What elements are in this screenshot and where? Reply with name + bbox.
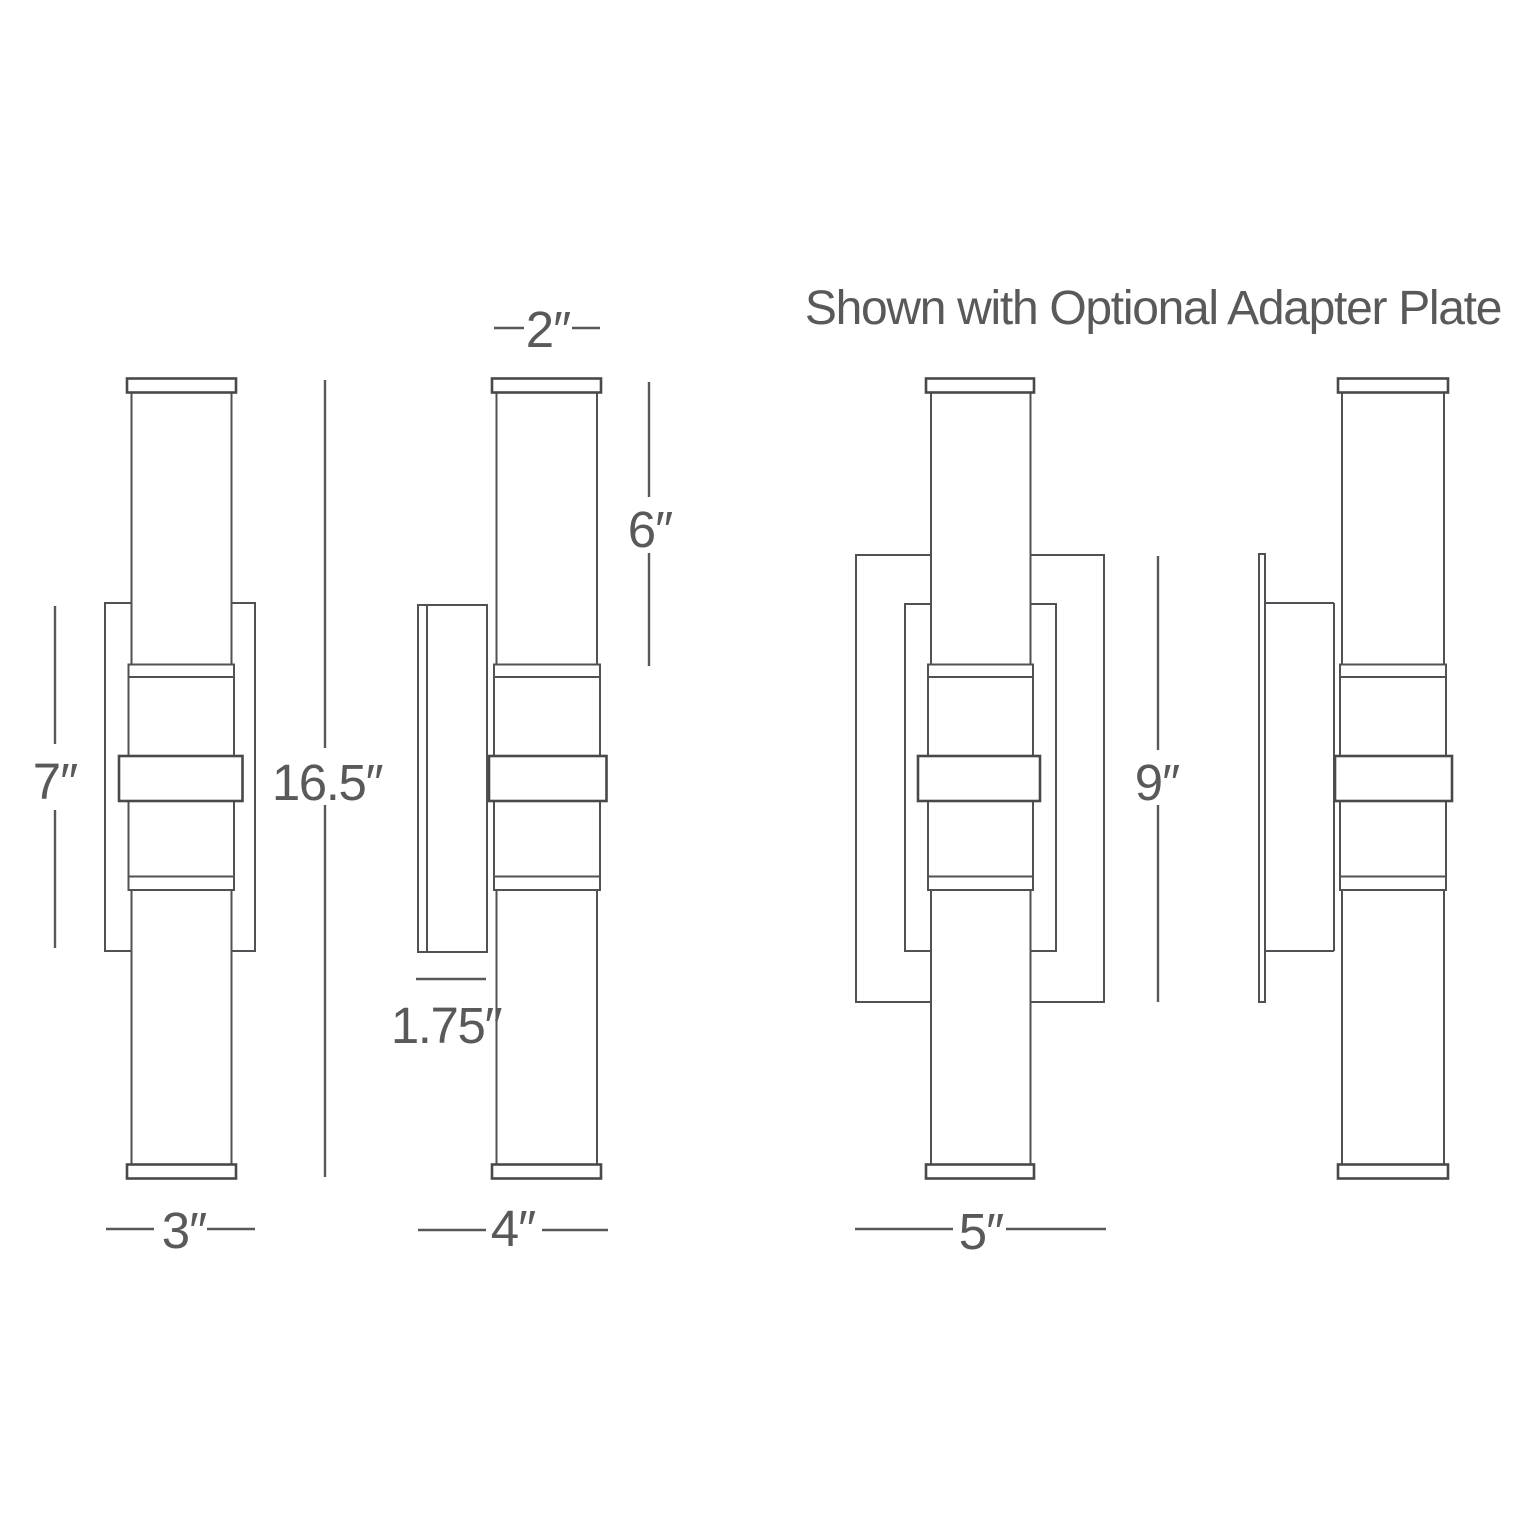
svg-text:3″: 3″ [162, 1202, 207, 1259]
svg-text:6″: 6″ [628, 501, 673, 558]
svg-text:2″: 2″ [526, 301, 571, 358]
svg-text:7″: 7″ [33, 753, 78, 810]
svg-text:16.5″: 16.5″ [272, 754, 384, 811]
svg-text:9″: 9″ [1135, 754, 1180, 811]
svg-text:4″: 4″ [491, 1200, 536, 1257]
svg-text:1.75″: 1.75″ [391, 997, 503, 1054]
svg-text:Shown with Optional Adapter Pl: Shown with Optional Adapter Plate [805, 282, 1501, 335]
svg-text:5″: 5″ [959, 1203, 1004, 1260]
